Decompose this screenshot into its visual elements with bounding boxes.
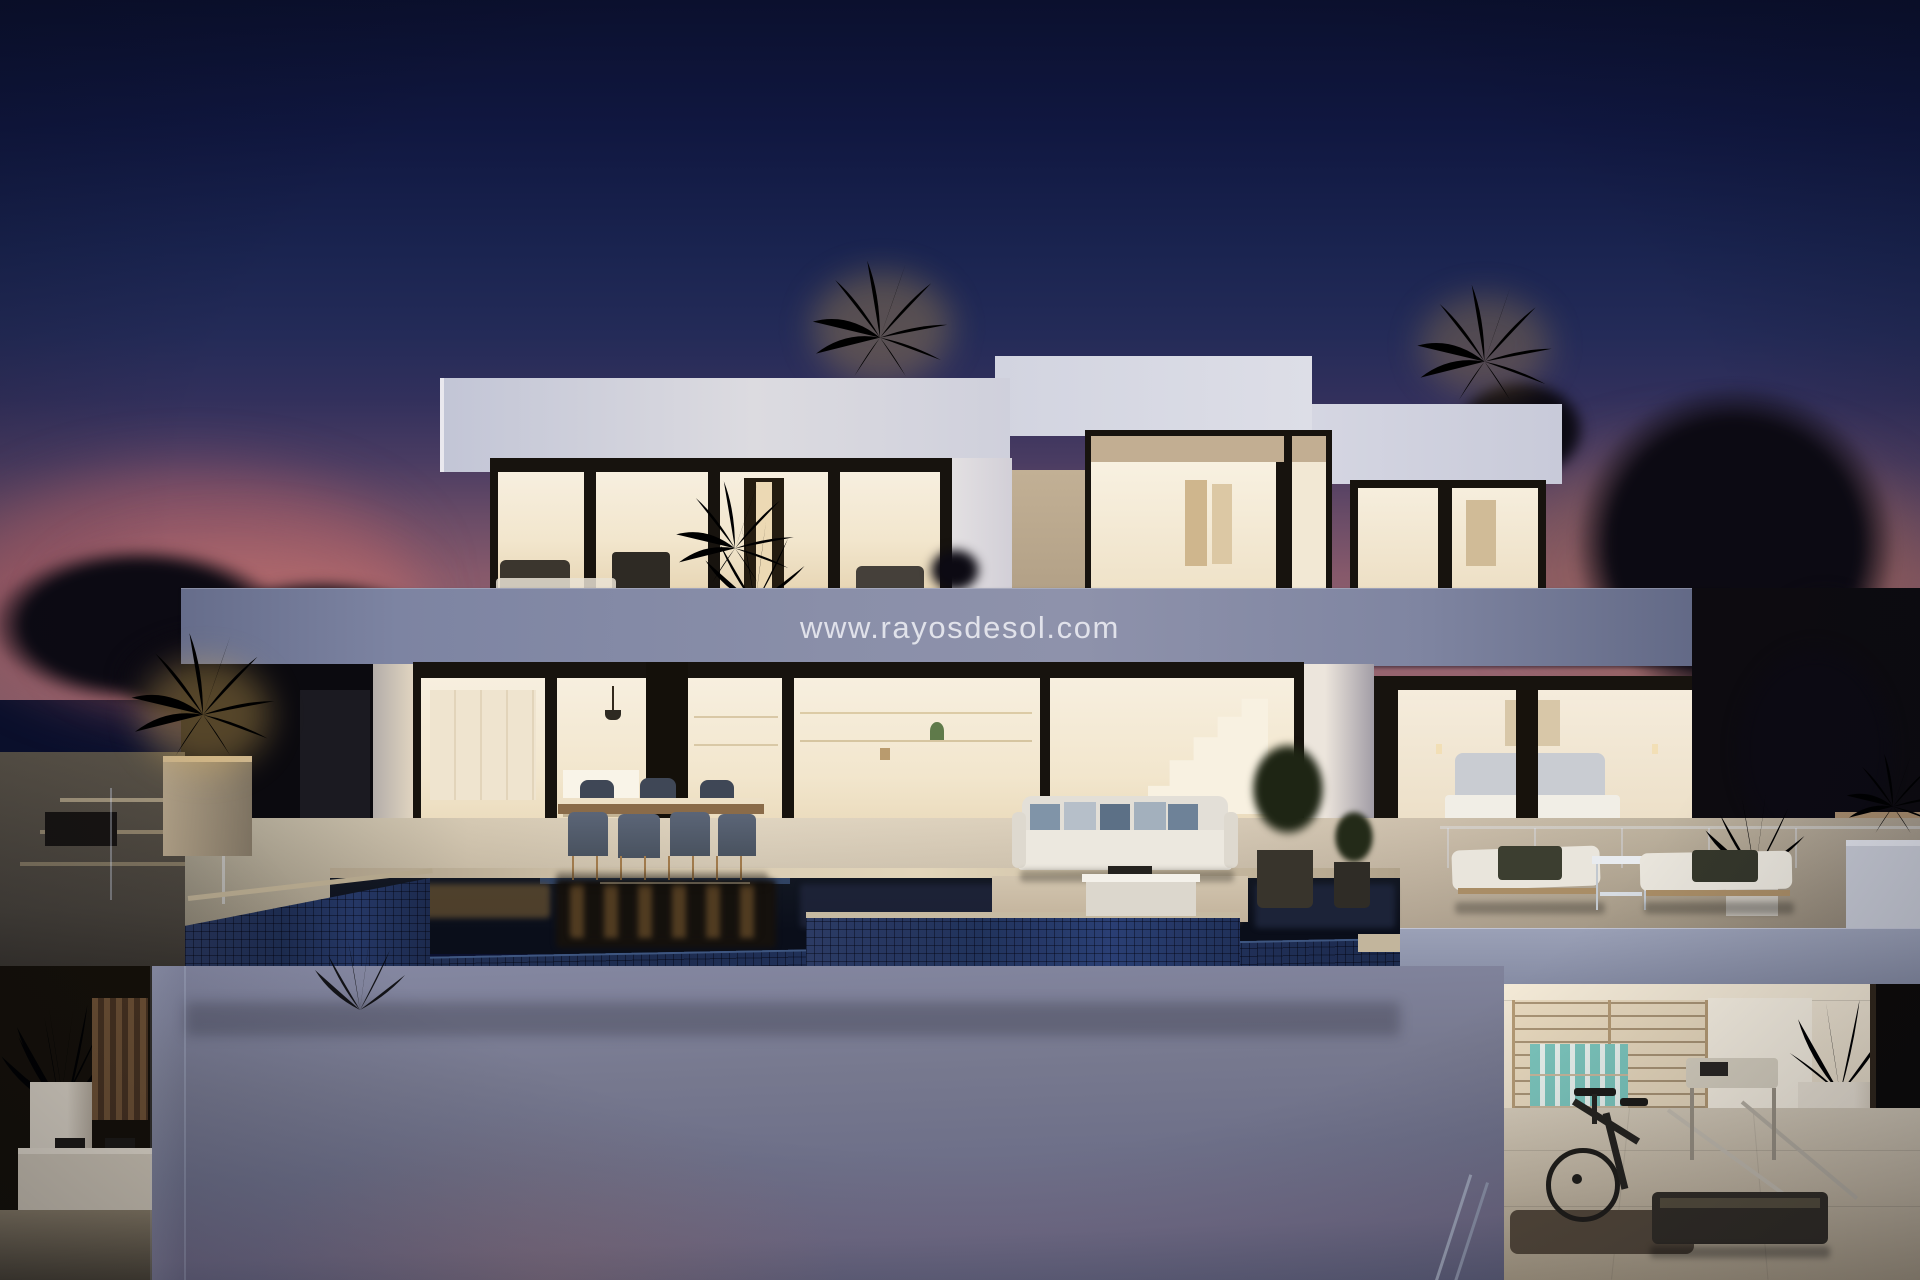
upper-right-art	[1466, 500, 1496, 566]
shelf-line-3	[800, 712, 1032, 714]
teal-stack-shelf	[1530, 1074, 1628, 1076]
wall-sconce-left	[1436, 744, 1442, 754]
veranda-reflection	[300, 690, 370, 820]
upper-right-wing-roof	[1312, 404, 1562, 484]
treadmill-upright-2	[1772, 1088, 1776, 1160]
lounger-base-2	[1646, 890, 1790, 896]
balustrade-post-left-1	[110, 788, 112, 900]
dining-chair-2	[618, 814, 660, 858]
alcove-floor	[0, 1210, 152, 1280]
lounger-shadow-1	[1455, 902, 1605, 914]
outdoor-sofa-seat	[1018, 830, 1232, 870]
outdoor-bench-silhouette	[45, 812, 117, 846]
shelf-line-4	[800, 740, 1032, 742]
lounger-towel-1	[1498, 846, 1562, 880]
plant-pot-2	[1334, 862, 1370, 908]
lounger-base-1	[1458, 888, 1598, 894]
glass-balustrade-panel	[150, 966, 186, 1280]
shelf-plant	[930, 722, 944, 740]
dining-chair-far-3	[700, 780, 734, 800]
treadmill-upright-1	[1690, 1088, 1694, 1160]
wood-slat-wall	[92, 998, 148, 1120]
upper-tan-wall	[1012, 470, 1085, 596]
treadmill-screen	[1700, 1062, 1728, 1076]
side-table-leg-1	[1596, 864, 1598, 910]
shelf-line-1	[694, 716, 778, 718]
white-cube-planter	[1846, 840, 1920, 932]
interior-art-strip-2	[1212, 484, 1232, 564]
treadmill-shadow	[1650, 1246, 1830, 1258]
dark-plant-over-cube	[1838, 745, 1920, 855]
dining-chair-4	[718, 814, 756, 856]
wall-sconce-right	[1652, 744, 1658, 754]
sofa-arm-left	[1012, 812, 1026, 868]
upper-center-side-panel	[1292, 462, 1326, 592]
dining-chair-far-2	[640, 778, 676, 800]
site-watermark: www.rayosdesol.com	[0, 610, 1920, 646]
dining-chair-far-1	[580, 780, 614, 800]
potted-olive-tree	[1236, 724, 1340, 854]
coffee-table-top	[1082, 874, 1200, 882]
bike-seat	[1620, 1098, 1648, 1106]
dining-chair-1	[568, 812, 608, 856]
lounger-shadow-2	[1644, 902, 1794, 914]
pool-right-coping-step	[1358, 934, 1406, 952]
terrace-step-3	[20, 862, 185, 866]
lounger-towel-2	[1692, 850, 1758, 882]
glass-balustrade-edge	[184, 966, 186, 1280]
pendant-lamp	[605, 710, 621, 720]
kitchen-cabinets	[430, 690, 536, 800]
interior-art-strip-1	[1185, 480, 1207, 566]
exercise-bike-flywheel	[1546, 1148, 1620, 1222]
side-table-shelf	[1600, 892, 1642, 896]
lit-grass-pool-left	[285, 915, 435, 1015]
upper-roof-high-block	[995, 356, 1312, 436]
pool-reflection-warm-1	[420, 884, 550, 918]
upper-center-mullion	[1284, 436, 1292, 592]
pendant-lamp-stem	[612, 686, 614, 710]
treadmill-belt	[1660, 1198, 1820, 1208]
dining-set-shadow	[556, 872, 768, 888]
upper-center-window-glass	[1091, 462, 1276, 592]
shelf-vase	[880, 748, 890, 760]
teal-mat-stack	[1530, 1044, 1628, 1108]
villa-dusk-photo: www.rayosdesol.com	[0, 0, 1920, 1280]
bike-hub	[1572, 1174, 1582, 1184]
coffee-table-body	[1086, 882, 1196, 916]
terrace-step-1	[60, 798, 180, 802]
upper-right-mullion	[1438, 486, 1452, 598]
bike-stem	[1592, 1094, 1597, 1124]
wall-bars-upright-1	[1512, 1000, 1515, 1108]
dining-chair-3	[670, 812, 710, 856]
plant-pot-1	[1257, 850, 1313, 908]
pool-reflection-chairs	[570, 884, 760, 938]
shelf-line-2	[694, 744, 778, 746]
balustrade-post-r1	[1447, 828, 1449, 868]
alcove-bench	[18, 1148, 152, 1212]
upper-slab-edge-highlight	[440, 378, 444, 472]
